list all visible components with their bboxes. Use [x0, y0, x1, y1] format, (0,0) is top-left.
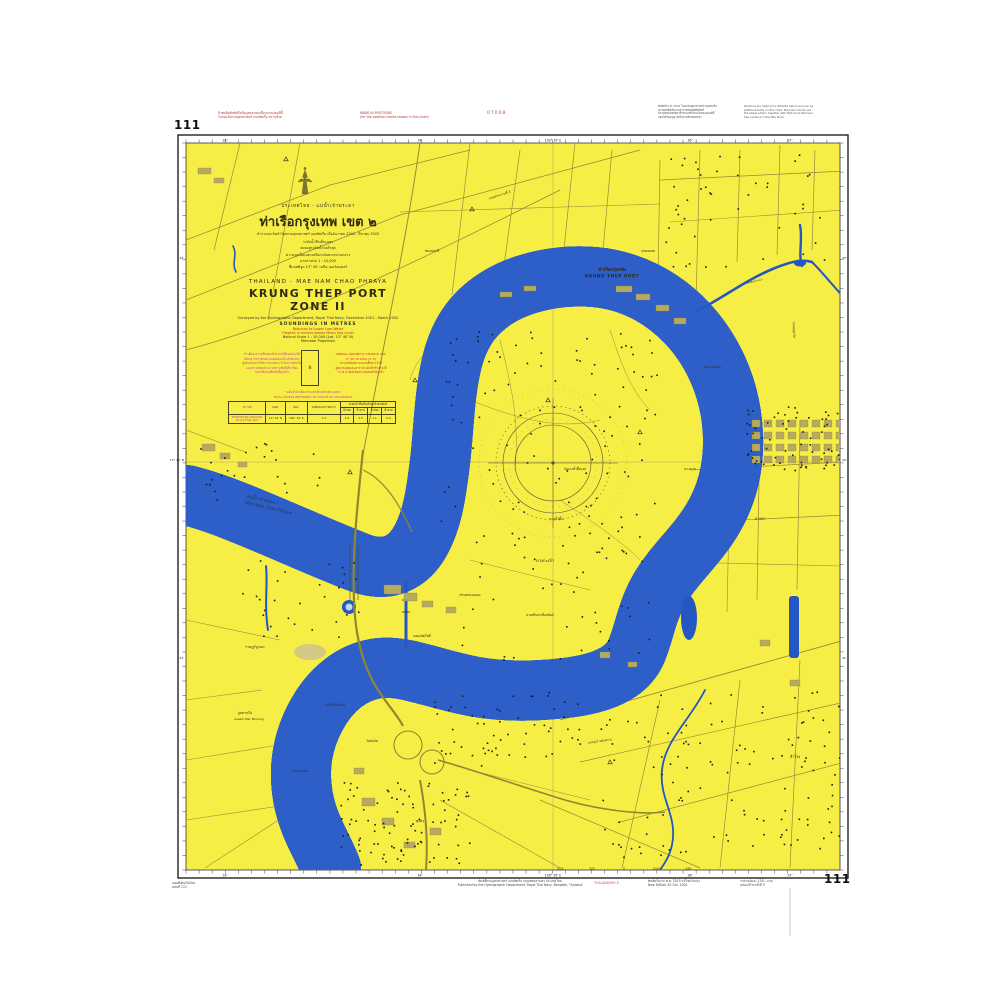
tide-table-cell: 2.8 — [340, 414, 353, 424]
svg-text:41': 41' — [842, 656, 847, 660]
svg-text:100° 35' E: 100° 35' E — [545, 139, 562, 143]
map-label: วัดบางนานอก — [703, 365, 722, 369]
map-label: บางนา — [754, 516, 765, 521]
caution-red: ANNUAL MAGNETIC CHANGE VAR.0° 35' W 2002… — [318, 352, 404, 375]
map-label: พระประแดง — [325, 702, 345, 707]
title-en-region: THAILAND - MAE NAM CHAO PHRAYA — [228, 279, 408, 285]
map-label: คลองเตย — [641, 249, 654, 253]
title-surveyed: Surveyed by the Hydrographic Department,… — [228, 316, 408, 320]
tide-table-cell: 13° 42' N — [266, 414, 286, 424]
svg-text:37': 37' — [788, 874, 793, 878]
map-label: ตำบลทรงคนอง — [460, 593, 481, 597]
top-note-english: Positions are referred to WGS-84 datum a… — [744, 105, 844, 120]
chart-number-top-left: 111 — [174, 118, 201, 132]
tide-table-cell: 1.9 — [307, 414, 340, 424]
top-red-note-left: ถ้าพบสิ่งพิมพ์หรือข้อมูลคลาดเคลื่อนจากแผ… — [218, 111, 328, 120]
top-magenta-code: 07008 — [487, 111, 506, 116]
map-label: ช่องนนทรี — [425, 248, 440, 253]
svg-text:100° 35' E: 100° 35' E — [545, 874, 562, 878]
svg-text:37': 37' — [788, 139, 793, 143]
map-label: คลองลัดโพธิ์ — [413, 633, 432, 638]
magnetic-note-box: N — [301, 350, 319, 386]
tide-table-cell: 0.4 — [381, 414, 395, 424]
title-thai-region: ประเทศไทย - แม่น้ำเจ้าพระยา — [228, 203, 408, 210]
bottom-note-edition: พิมพ์ครั้งแรก พ.ศ. 2515 แก้ไขปรับปรุงNew… — [648, 879, 733, 888]
svg-text:34': 34' — [418, 874, 423, 878]
map-label: ราษฎร์บูรณะ — [245, 645, 265, 649]
title-thai-subtitle: สำรวจและจัดทำโดยกรมอุทกศาสตร์ กองทัพเรือ… — [228, 232, 408, 237]
bottom-note-price: ราคาฉบับละ 150.- บาทฉบับแก้ไข ครั้งที่ 5 — [740, 879, 815, 888]
title-block: ประเทศไทย - แม่น้ำเจ้าพระยา ท่าเรือกรุงเ… — [228, 203, 408, 343]
title-thai-lines: ระดับน้ำลึกเป็นเมตรลดลงสู่ระดับน้ำลงต่ำส… — [228, 239, 408, 270]
svg-text:33': 33' — [223, 139, 228, 143]
svg-text:43': 43' — [842, 256, 847, 260]
svg-text:เมตร: เมตร — [685, 867, 692, 871]
svg-text:36': 36' — [688, 874, 693, 878]
tide-table-cell: ท่าเรือกรุงเทพ (คลองเตย) Krung Thep Port — [229, 414, 266, 424]
map-label: Asiatic Pier Mooring — [233, 717, 264, 721]
map-label: บางน้ำผึ้ง — [549, 516, 563, 521]
svg-text:1000: 1000 — [556, 867, 563, 871]
svg-text:42': 42' — [842, 458, 847, 462]
svg-text:1000: 1000 — [652, 867, 659, 871]
tide-table-cell: 2.2 — [354, 414, 368, 424]
svg-text:13° 42' N: 13° 42' N — [170, 458, 184, 462]
tide-table: สถานที่แลต.ลอง.ระดับทะเลปานกลางระดับน้ำข… — [228, 401, 396, 424]
map-label: บางกะเจ้า — [536, 558, 554, 563]
nautical-chart-sheet: { "meta": { "chart_number": "111", "map_… — [0, 0, 998, 1000]
title-projection: Mercator Projection — [228, 339, 408, 343]
map-label: บางจาก — [684, 467, 696, 471]
tide-table-cell: 1.1 — [368, 414, 381, 424]
svg-text:500: 500 — [589, 867, 595, 871]
map-label: วัดคันลัด — [366, 739, 378, 743]
tide-caption: ระดับน้ำอ้างอิงจากระดับน้ำลงต่ำสุด (เมตร… — [228, 390, 398, 399]
top-red-note-right: MADE IN POSITIONS(for the position marks… — [360, 111, 470, 120]
chart-number-bottom-right: 111 — [824, 872, 851, 886]
bottom-note-left: แผนที่เดินเรือไทยฉบับที่ 111 — [172, 881, 195, 890]
bottom-magenta-code: TH4-AN0099-5 — [594, 881, 619, 885]
map-label: อู่ทหารเรือ — [238, 710, 253, 715]
map-label: ท่าเรือกรุงเทพ — [598, 266, 626, 273]
svg-text:0: 0 — [623, 867, 625, 871]
caution-magenta: คำเตือน ความลึกของน้ำอาจเปลี่ยนแปลงได้เน… — [232, 352, 312, 375]
tide-table-cell: 100° 34' E — [285, 414, 307, 424]
map-label: สวนศรีนครเขื่อนขันธ์ — [526, 612, 554, 617]
map-label: บางปะกอก — [292, 769, 308, 773]
title-en-main: KRUNG THEP PORT ZONE II — [228, 287, 408, 313]
svg-text:36': 36' — [688, 139, 693, 143]
map-label: KRUNG THEP PORT — [585, 274, 639, 280]
top-note-thai: ลิขสิทธิ์ พ.ศ. 2545 โดยกรมอุทกศาสตร์ กอง… — [658, 105, 738, 120]
svg-text:41': 41' — [179, 656, 184, 660]
svg-text:33': 33' — [223, 874, 228, 878]
chart-map: ท่าเรือกรุงเทพKRUNG THEP PORTแม่น้ำเจ้าพ… — [0, 0, 998, 1000]
map-label: สำโรง — [790, 754, 801, 759]
svg-text:34': 34' — [418, 139, 423, 143]
map-label: วัดบางน้ำผึ้งนอก — [563, 466, 586, 471]
title-thai-main: ท่าเรือกรุงเทพ เขต ๒ — [228, 211, 408, 232]
svg-text:43': 43' — [179, 256, 184, 260]
